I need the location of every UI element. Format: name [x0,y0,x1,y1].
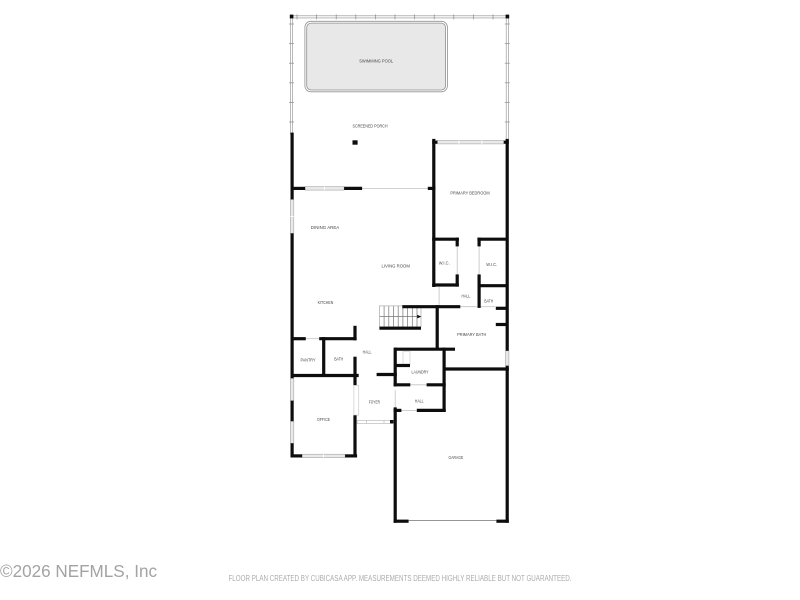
svg-text:FOYER: FOYER [369,400,381,406]
svg-text:PRIMARY BATH: PRIMARY BATH [457,332,487,338]
svg-text:DINING AREA: DINING AREA [311,225,340,231]
svg-text:GARAGE: GARAGE [449,455,464,461]
svg-text:LIVING ROOM: LIVING ROOM [382,263,410,269]
svg-text:BATH: BATH [484,298,493,304]
svg-text:HALL: HALL [363,349,372,355]
svg-text:W.I.C.: W.I.C. [486,262,497,268]
svg-text:KITCHEN: KITCHEN [318,300,334,306]
svg-text:OFFICE: OFFICE [317,417,330,423]
svg-text:HALL: HALL [462,294,471,300]
svg-text:SCREENED PORCH: SCREENED PORCH [353,124,388,130]
svg-text:PRIMARY BEDROOM: PRIMARY BEDROOM [450,190,489,196]
svg-text:SWIMMING POOL: SWIMMING POOL [359,59,393,65]
svg-text:LAUNDRY: LAUNDRY [412,370,430,376]
svg-text:HALL: HALL [415,399,424,405]
svg-text:BATH: BATH [334,356,343,362]
svg-text:PANTRY: PANTRY [301,358,317,364]
svg-text:W.I.C.: W.I.C. [439,260,450,266]
